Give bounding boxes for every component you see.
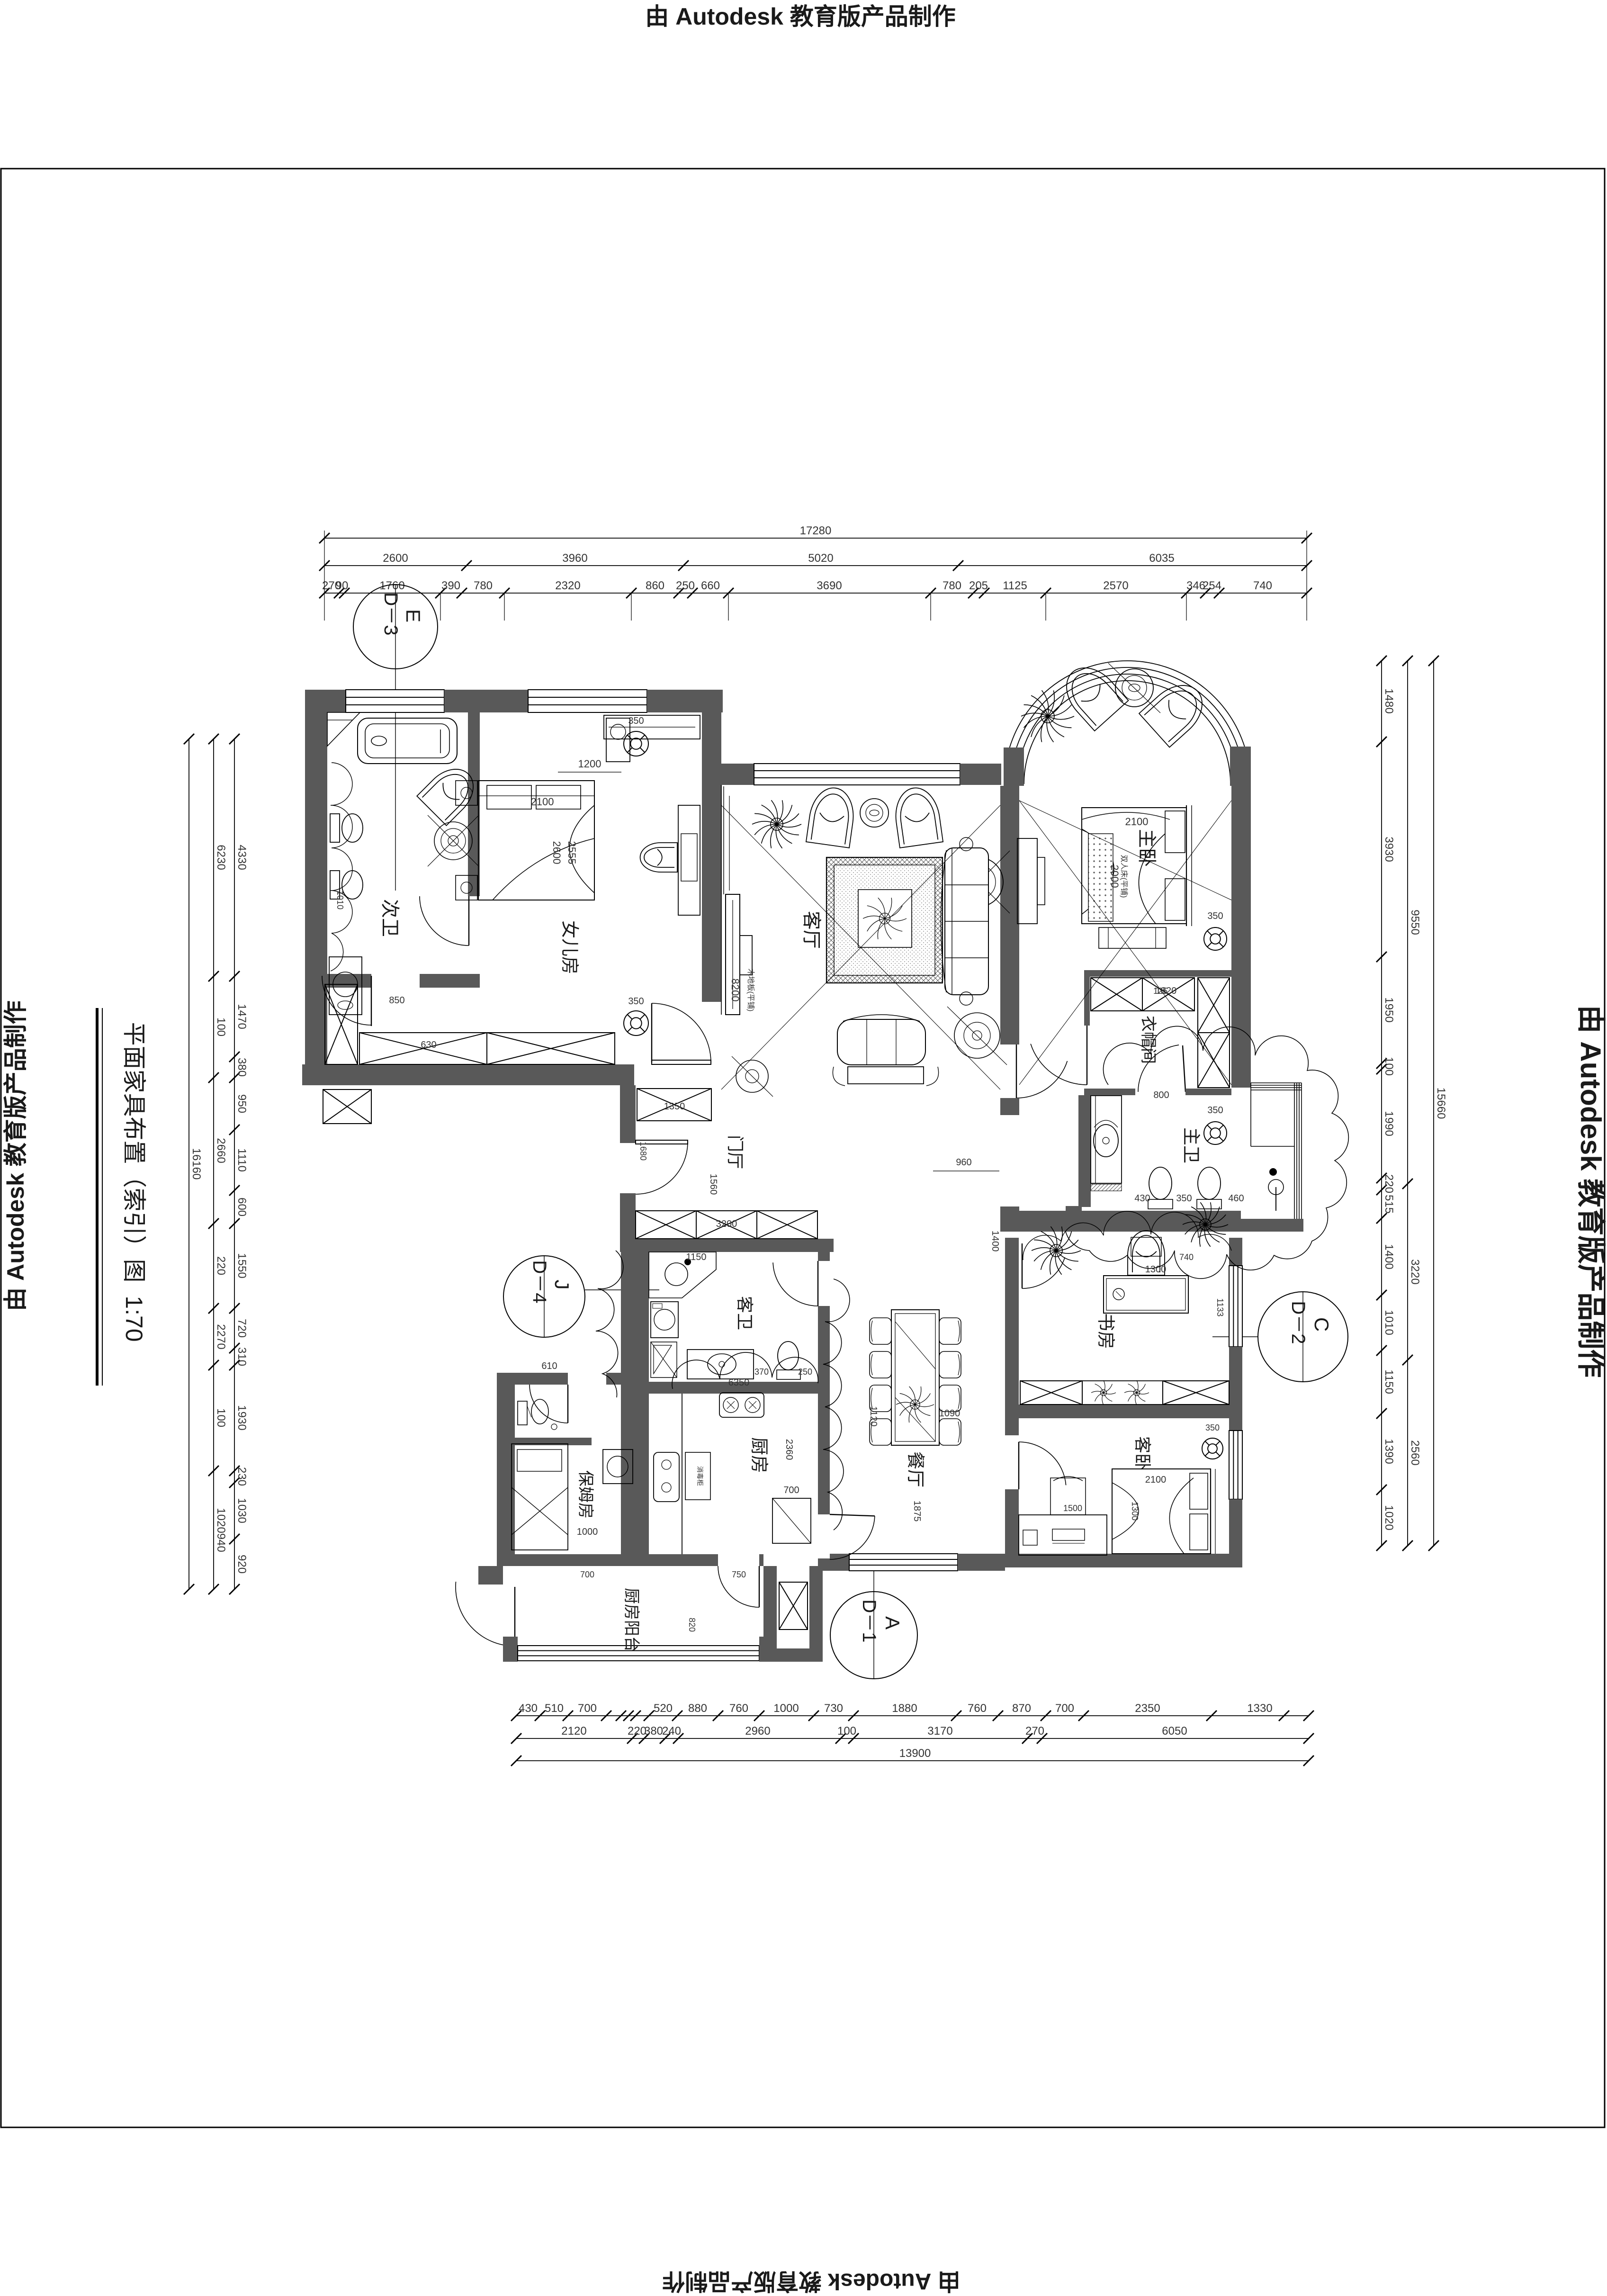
svg-text:460: 460 bbox=[1228, 1193, 1244, 1204]
svg-text:1010: 1010 bbox=[335, 891, 345, 909]
svg-text:2270: 2270 bbox=[215, 1324, 227, 1349]
svg-text:600: 600 bbox=[235, 1198, 248, 1216]
svg-text:2570: 2570 bbox=[1103, 579, 1128, 592]
svg-text:3930: 3930 bbox=[1383, 837, 1395, 862]
svg-text:15660: 15660 bbox=[1435, 1088, 1447, 1119]
svg-text:J: J bbox=[551, 1280, 573, 1290]
svg-text:205: 205 bbox=[969, 579, 988, 592]
svg-text:2100: 2100 bbox=[531, 796, 554, 808]
svg-text:510: 510 bbox=[545, 1702, 564, 1715]
svg-text:630: 630 bbox=[421, 1040, 436, 1050]
svg-text:700: 700 bbox=[783, 1485, 799, 1495]
svg-text:2000: 2000 bbox=[1109, 865, 1121, 888]
svg-text:6230: 6230 bbox=[215, 845, 227, 870]
svg-text:700: 700 bbox=[1055, 1702, 1074, 1715]
svg-text:950: 950 bbox=[235, 1094, 248, 1113]
svg-text:厨房阳台: 厨房阳台 bbox=[622, 1588, 640, 1652]
svg-text:720: 720 bbox=[235, 1319, 248, 1338]
svg-text:350: 350 bbox=[1205, 1423, 1220, 1432]
svg-text:350: 350 bbox=[1176, 1193, 1192, 1204]
svg-text:1560: 1560 bbox=[708, 1174, 718, 1195]
svg-text:主卫: 主卫 bbox=[1181, 1127, 1201, 1163]
svg-text:100: 100 bbox=[837, 1725, 856, 1738]
svg-text:D－4: D－4 bbox=[529, 1260, 550, 1303]
svg-text:610: 610 bbox=[541, 1361, 557, 1371]
svg-text:1010: 1010 bbox=[1383, 1310, 1395, 1335]
svg-text:780: 780 bbox=[943, 579, 961, 592]
svg-text:4330: 4330 bbox=[235, 845, 248, 870]
svg-text:1330: 1330 bbox=[1247, 1702, 1272, 1715]
svg-text:13900: 13900 bbox=[899, 1747, 931, 1760]
svg-text:6050: 6050 bbox=[1162, 1725, 1187, 1738]
svg-text:D－3: D－3 bbox=[380, 592, 401, 635]
svg-text:760: 760 bbox=[968, 1702, 987, 1715]
svg-text:1125: 1125 bbox=[1003, 579, 1027, 592]
svg-text:520: 520 bbox=[654, 1702, 673, 1715]
svg-text:90: 90 bbox=[336, 579, 349, 592]
svg-text:2100: 2100 bbox=[1125, 816, 1149, 828]
svg-text:230: 230 bbox=[235, 1467, 248, 1486]
svg-text:2120: 2120 bbox=[561, 1725, 586, 1738]
svg-text:2660: 2660 bbox=[215, 1138, 227, 1163]
svg-text:1875: 1875 bbox=[912, 1501, 922, 1522]
svg-text:660: 660 bbox=[701, 579, 720, 592]
svg-text:1400: 1400 bbox=[990, 1231, 1000, 1252]
svg-text:740: 740 bbox=[1179, 1252, 1194, 1262]
svg-text:主卧: 主卧 bbox=[1136, 829, 1157, 867]
svg-text:100: 100 bbox=[215, 1017, 227, 1036]
svg-text:240: 240 bbox=[662, 1725, 681, 1738]
svg-text:9550: 9550 bbox=[1409, 909, 1421, 935]
svg-text:700: 700 bbox=[578, 1702, 597, 1715]
svg-text:1760: 1760 bbox=[379, 579, 404, 592]
svg-text:D－1: D－1 bbox=[859, 1599, 880, 1642]
svg-text:餐厅: 餐厅 bbox=[905, 1451, 925, 1487]
svg-text:350: 350 bbox=[628, 996, 644, 1007]
svg-text:1500: 1500 bbox=[1063, 1504, 1082, 1513]
svg-text:700: 700 bbox=[580, 1570, 594, 1579]
svg-text:1000: 1000 bbox=[773, 1702, 799, 1715]
svg-text:1550: 1550 bbox=[235, 1253, 248, 1278]
svg-text:1000: 1000 bbox=[577, 1527, 598, 1537]
svg-text:1030: 1030 bbox=[235, 1498, 248, 1523]
svg-text:E: E bbox=[402, 609, 424, 622]
svg-text:厨房: 厨房 bbox=[749, 1437, 769, 1473]
svg-text:1390: 1390 bbox=[1383, 1439, 1395, 1464]
svg-text:1880: 1880 bbox=[892, 1702, 917, 1715]
svg-text:双人床(平铺): 双人床(平铺) bbox=[1120, 855, 1128, 898]
svg-text:门厅: 门厅 bbox=[726, 1135, 745, 1169]
svg-text:1150: 1150 bbox=[1383, 1369, 1395, 1394]
svg-text:1300: 1300 bbox=[1130, 1502, 1140, 1521]
svg-text:D－2: D－2 bbox=[1288, 1301, 1309, 1344]
svg-text:220: 220 bbox=[1383, 1174, 1395, 1193]
svg-text:250: 250 bbox=[798, 1367, 812, 1377]
svg-text:书房: 书房 bbox=[1095, 1313, 1115, 1349]
svg-text:1120: 1120 bbox=[868, 1406, 879, 1426]
svg-text:780: 780 bbox=[474, 579, 493, 592]
svg-text:C: C bbox=[1311, 1317, 1333, 1332]
svg-text:1150: 1150 bbox=[686, 1252, 706, 1262]
svg-text:A: A bbox=[881, 1616, 904, 1630]
svg-text:3220: 3220 bbox=[1409, 1259, 1421, 1284]
svg-text:由 Autodesk 教育版产品制作: 由 Autodesk 教育版产品制作 bbox=[2, 1000, 29, 1311]
svg-text:1480: 1480 bbox=[1383, 688, 1395, 713]
svg-text:370: 370 bbox=[754, 1367, 769, 1377]
svg-text:木地板(平铺): 木地板(平铺) bbox=[746, 969, 755, 1012]
svg-text:客厅: 客厅 bbox=[801, 911, 822, 949]
svg-text:250: 250 bbox=[676, 579, 695, 592]
svg-text:17280: 17280 bbox=[800, 524, 832, 537]
svg-text:2600: 2600 bbox=[551, 841, 563, 864]
svg-text:380: 380 bbox=[235, 1058, 248, 1077]
svg-text:350: 350 bbox=[1207, 1105, 1223, 1116]
svg-text:860: 860 bbox=[646, 579, 664, 592]
svg-text:1133: 1133 bbox=[1215, 1298, 1225, 1317]
svg-text:3170: 3170 bbox=[927, 1725, 952, 1738]
svg-text:客卫: 客卫 bbox=[735, 1296, 754, 1330]
svg-text:740: 740 bbox=[1253, 579, 1272, 592]
svg-text:3960: 3960 bbox=[562, 552, 587, 565]
svg-text:由 Autodesk 教育版产品制作: 由 Autodesk 教育版产品制作 bbox=[662, 2269, 960, 2294]
svg-text:2560: 2560 bbox=[1409, 1440, 1421, 1465]
svg-text:750: 750 bbox=[732, 1570, 746, 1579]
svg-text:1090: 1090 bbox=[939, 1408, 961, 1419]
svg-text:2100: 2100 bbox=[1145, 1475, 1167, 1485]
svg-text:880: 880 bbox=[688, 1702, 707, 1715]
svg-text:6035: 6035 bbox=[1149, 552, 1174, 565]
svg-text:5020: 5020 bbox=[808, 552, 833, 565]
svg-text:100: 100 bbox=[1383, 1057, 1395, 1076]
svg-text:1020: 1020 bbox=[1383, 1505, 1395, 1530]
svg-text:730: 730 bbox=[824, 1702, 843, 1715]
svg-text:2555: 2555 bbox=[566, 841, 578, 864]
svg-text:由 Autodesk 教育版产品制作: 由 Autodesk 教育版产品制作 bbox=[1575, 1005, 1607, 1378]
svg-text:1300: 1300 bbox=[1145, 1264, 1167, 1275]
svg-text:800: 800 bbox=[1153, 1090, 1169, 1100]
svg-text:380: 380 bbox=[644, 1725, 663, 1738]
svg-text:1400: 1400 bbox=[1383, 1244, 1395, 1269]
svg-text:1950: 1950 bbox=[1383, 997, 1395, 1022]
svg-text:6350: 6350 bbox=[728, 1378, 750, 1388]
svg-text:100: 100 bbox=[215, 1408, 227, 1427]
svg-text:760: 760 bbox=[729, 1702, 748, 1715]
svg-text:920: 920 bbox=[235, 1555, 248, 1574]
svg-text:1990: 1990 bbox=[1383, 1111, 1395, 1136]
svg-text:消毒柜: 消毒柜 bbox=[696, 1466, 704, 1486]
svg-text:2360: 2360 bbox=[784, 1439, 794, 1460]
svg-text:2960: 2960 bbox=[745, 1725, 770, 1738]
svg-text:次卫: 次卫 bbox=[379, 899, 400, 937]
svg-text:8200: 8200 bbox=[729, 979, 741, 1002]
svg-text:960: 960 bbox=[956, 1157, 971, 1168]
svg-text:1470: 1470 bbox=[235, 1004, 248, 1029]
svg-text:430: 430 bbox=[1134, 1193, 1150, 1204]
svg-text:平面家具布置（索引）图 1:70: 平面家具布置（索引）图 1:70 bbox=[121, 1022, 147, 1342]
svg-text:1110: 1110 bbox=[235, 1148, 248, 1172]
svg-text:390: 390 bbox=[441, 579, 460, 592]
svg-text:870: 870 bbox=[1012, 1702, 1031, 1715]
svg-text:430: 430 bbox=[519, 1702, 538, 1715]
svg-text:270: 270 bbox=[1025, 1725, 1044, 1738]
svg-text:515: 515 bbox=[1383, 1195, 1395, 1214]
svg-text:3200: 3200 bbox=[716, 1219, 737, 1229]
svg-text:2320: 2320 bbox=[555, 579, 580, 592]
svg-text:350: 350 bbox=[628, 716, 644, 726]
svg-text:1020940: 1020940 bbox=[215, 1508, 227, 1552]
svg-text:1930: 1930 bbox=[235, 1405, 248, 1430]
svg-text:125: 125 bbox=[1153, 986, 1167, 996]
svg-text:820: 820 bbox=[687, 1618, 697, 1632]
svg-text:2600: 2600 bbox=[383, 552, 408, 565]
svg-text:1200: 1200 bbox=[578, 758, 602, 770]
svg-text:女儿房: 女儿房 bbox=[559, 920, 579, 974]
svg-text:310: 310 bbox=[235, 1347, 248, 1366]
svg-text:254: 254 bbox=[1203, 579, 1221, 592]
svg-text:1680: 1680 bbox=[638, 1142, 648, 1161]
svg-text:850: 850 bbox=[389, 995, 404, 1006]
svg-text:16160: 16160 bbox=[190, 1148, 203, 1180]
svg-text:由 Autodesk 教育版产品制作: 由 Autodesk 教育版产品制作 bbox=[645, 3, 956, 30]
svg-text:350: 350 bbox=[1207, 911, 1223, 921]
svg-text:2350: 2350 bbox=[1135, 1702, 1160, 1715]
svg-text:220: 220 bbox=[215, 1256, 227, 1275]
svg-text:1350: 1350 bbox=[664, 1101, 685, 1112]
svg-text:3690: 3690 bbox=[817, 579, 842, 592]
svg-text:客卧: 客卧 bbox=[1133, 1436, 1152, 1470]
svg-text:保姆房: 保姆房 bbox=[576, 1470, 594, 1519]
